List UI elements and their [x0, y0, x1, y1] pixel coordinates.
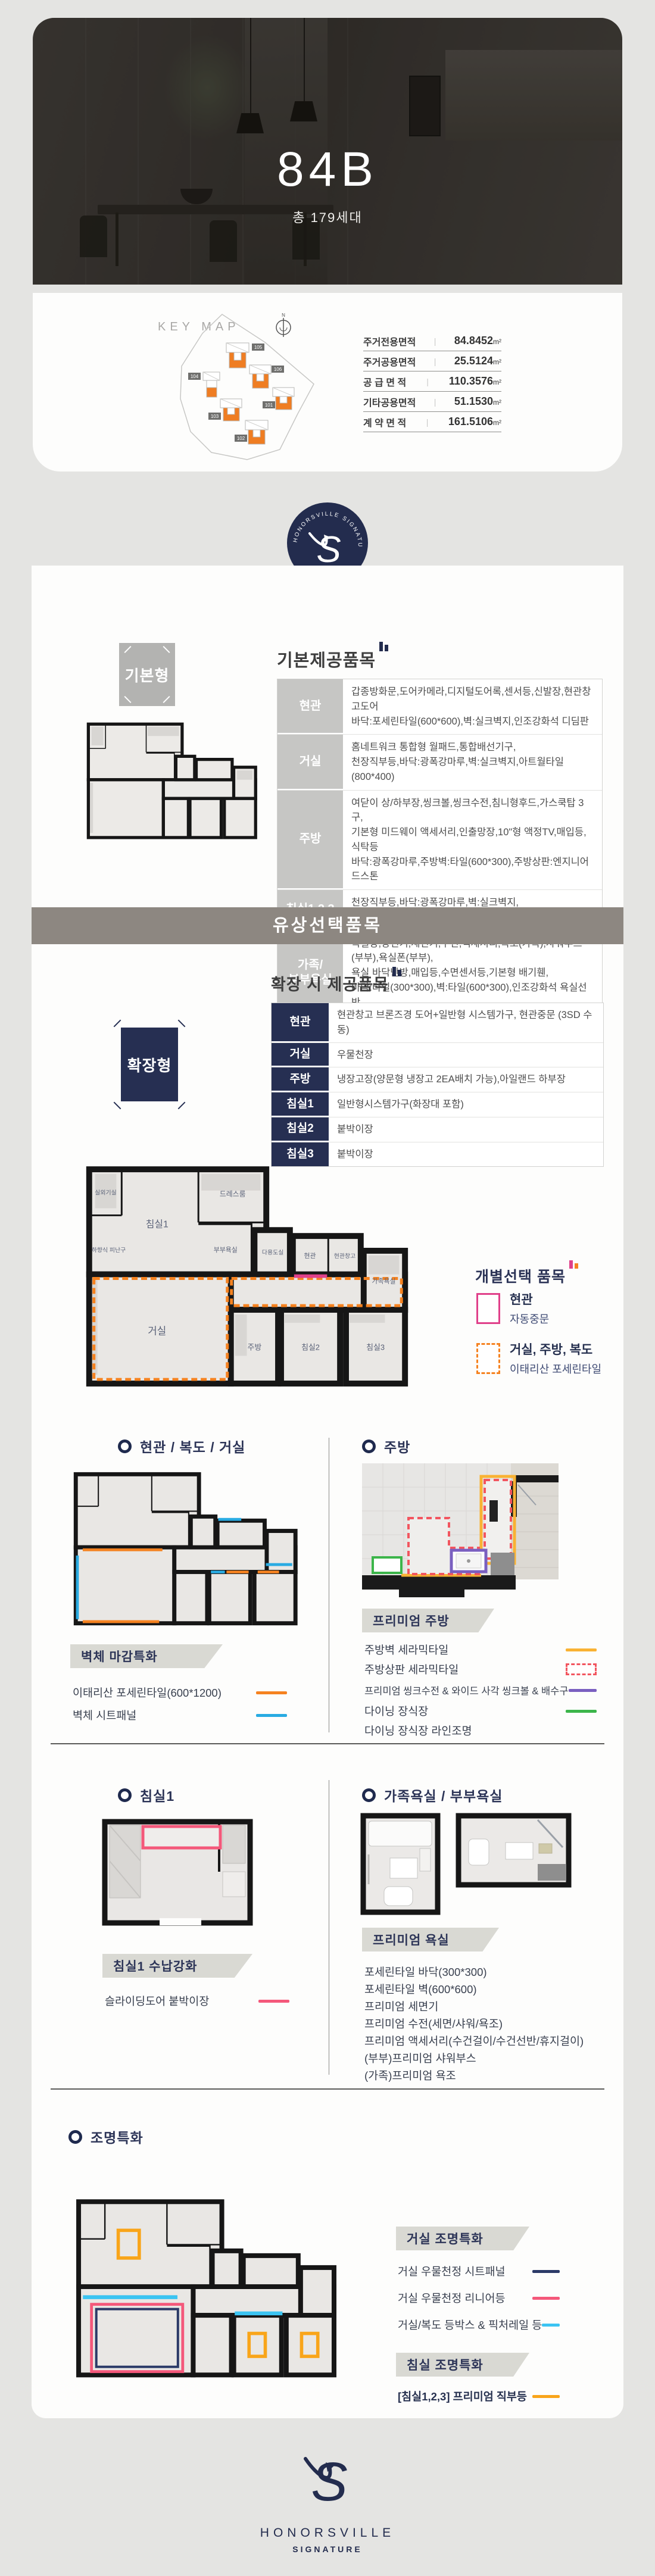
- wall-finish-floorplan: [65, 1469, 304, 1634]
- basic-items-table: 현관 갑종방화문,도어카메라,디지털도어록,센서등,신발장,현관창고도어 바닥:…: [277, 679, 603, 1016]
- keymap-card: [33, 293, 622, 472]
- svg-text:드레스룸: 드레스룸: [220, 1190, 246, 1198]
- legend-row: 프리미엄 씽크수전 & 와이드 사각 씽크볼 & 배수구: [364, 1683, 597, 1697]
- basic-floorplan: [80, 720, 262, 845]
- legend-row: 주방벽 세라믹타일: [364, 1642, 597, 1657]
- legend-row: 벽체 시트패널: [73, 1707, 287, 1723]
- pink-line-swatch: [532, 2297, 560, 2300]
- wall-finish-tag: 벽체 마감특화: [70, 1644, 223, 1668]
- dining-cabinet-highlight: [373, 1557, 401, 1573]
- ring-icon: [362, 1440, 376, 1453]
- list-item: (가족)프리미엄 욕조: [364, 2067, 584, 2084]
- footer-sub-brand: SIGNATURE: [0, 2544, 655, 2554]
- svg-text:102: 102: [237, 436, 245, 441]
- svg-text:현관창고: 현관창고: [334, 1253, 355, 1260]
- quote-marks-icon: [379, 642, 388, 651]
- svg-text:거실: 거실: [148, 1326, 166, 1337]
- living-lighting-tag: 거실 조명특화: [396, 2227, 529, 2250]
- svg-text:가족욕실: 가족욕실: [372, 1277, 395, 1285]
- footer-logo-icon: S: [295, 2446, 360, 2517]
- svg-text:부부욕실: 부부욕실: [214, 1246, 238, 1254]
- column-divider: [329, 1780, 329, 2075]
- site-keymap: 105 106 104 101 103 102: [176, 310, 322, 466]
- master-bath-floorplan: [456, 1813, 572, 1888]
- svg-text:실외기실: 실외기실: [95, 1189, 116, 1197]
- household-count: 총 179세대: [33, 207, 622, 226]
- table-row: 계 약 면 적| 161.5106m²: [363, 412, 501, 432]
- table-row: 침실2 붙박이장: [272, 1117, 603, 1142]
- svg-text:105: 105: [254, 345, 263, 350]
- legend-row: [침실1,2,3] 프리미엄 직부등: [398, 2388, 560, 2404]
- table-row: 현관 현관창고 브론즈경 도어+일반형 시스템가구, 현관중문 (3SD 수동): [272, 1003, 603, 1043]
- svg-text:침실1: 침실1: [146, 1219, 169, 1229]
- table-row: 주거전용면적| 84.8452m²: [363, 331, 501, 351]
- section-heading-bathrooms: 가족욕실 / 부부욕실: [362, 1785, 503, 1805]
- list-item: 프리미엄 액세서리(수건걸이/수건선반/휴지걸이): [364, 2032, 584, 2050]
- amber-line-swatch: [566, 1648, 597, 1651]
- column-divider: [329, 1438, 329, 1732]
- pink-box-swatch: [476, 1293, 500, 1324]
- basic-items-title: 기본제공품목: [277, 647, 388, 672]
- table-row: 거실 우물천장: [272, 1043, 603, 1068]
- kitchen-floorplan: [362, 1463, 559, 1597]
- individual-select-title: 개별선택 품목: [475, 1265, 578, 1287]
- building-104: 104: [188, 372, 220, 397]
- building-102: 102: [235, 420, 268, 444]
- list-item: 포세린타일 벽(600*600): [364, 1981, 584, 1998]
- svg-text:주방: 주방: [248, 1342, 262, 1351]
- svg-text:106: 106: [274, 367, 282, 372]
- svg-text:침실2: 침실2: [301, 1342, 320, 1351]
- building-101: 101: [263, 388, 294, 410]
- quote-marks-icon: [569, 1260, 578, 1287]
- section-heading-bed1: 침실1: [118, 1785, 174, 1805]
- premium-bath-list: 포세린타일 바닥(300*300) 포세린타일 벽(600*600) 프리미엄 …: [364, 1963, 584, 2084]
- footer-brand: HONORSVILLE: [0, 2526, 655, 2540]
- red-dashed-swatch: [566, 1663, 597, 1675]
- area-table: 주거전용면적| 84.8452m² 주거공용면적| 25.5124m² 공 급 …: [363, 331, 501, 432]
- list-item: 포세린타일 바닥(300*300): [364, 1963, 584, 1981]
- expand-items-table: 현관 현관창고 브론즈경 도어+일반형 시스템가구, 현관중문 (3SD 수동)…: [271, 1003, 604, 1167]
- svg-text:S: S: [311, 2452, 347, 2512]
- table-row: 거실 홈네트워크 통합형 월패드,통합배선기구, 천장직부등,바닥:광폭강마루,…: [277, 735, 602, 790]
- legend-row: 다이닝 장식장 라인조명: [364, 1723, 597, 1738]
- svg-text:하향식 피난구: 하향식 피난구: [92, 1246, 126, 1254]
- ring-icon: [118, 1788, 132, 1802]
- table-row: 주방 냉장고장(양문형 냉장고 2EA배치 가능),아일랜드 하부장: [272, 1067, 603, 1092]
- table-row: 공 급 면 적| 110.3576m²: [363, 371, 501, 392]
- bedroom-lighting-tag: 침실 조명특화: [396, 2353, 529, 2377]
- individual-item-entrance: 현관 자동중문: [476, 1293, 549, 1326]
- legend-row: 거실/복도 등박스 & 픽처레일 등: [398, 2317, 560, 2333]
- section-divider: [51, 1743, 604, 1744]
- cyan-line-swatch: [542, 2324, 560, 2327]
- family-bath-floorplan: [360, 1813, 441, 1915]
- quote-marks-icon: [392, 967, 401, 976]
- individual-item-living: 거실, 주방, 복도 이태리산 포세린타일: [476, 1343, 601, 1376]
- table-row: 현관 갑종방화문,도어카메라,디지털도어록,센서등,신발장,현관창고도어 바닥:…: [277, 679, 602, 735]
- section-heading-lighting: 조명특화: [68, 2127, 144, 2147]
- legend-row: 거실 우물천정 시트패널: [398, 2263, 560, 2279]
- orange-line-swatch: [532, 2395, 560, 2398]
- navy-line-swatch: [532, 2270, 560, 2273]
- unit-type-title: 84B: [33, 142, 622, 198]
- blue-line-swatch: [256, 1714, 287, 1717]
- legend-row: 주방상판 세라믹타일: [364, 1662, 597, 1677]
- svg-text:다용도실: 다용도실: [262, 1249, 283, 1256]
- legend-row: 거실 우물천정 리니어등: [398, 2290, 560, 2306]
- building-106: 106: [249, 365, 284, 388]
- bed1-floorplan: [100, 1817, 255, 1927]
- svg-text:S: S: [316, 529, 341, 570]
- legend-row: 이태리산 포세린타일(600*1200): [73, 1685, 287, 1700]
- brochure-page: 84B 총 179세대 KEY MAP N 105 106 104: [0, 0, 655, 2576]
- orange-dashed-swatch: [476, 1343, 500, 1374]
- table-row: 주방 여닫이 상/하부장,씽크볼,씽크수전,침니형후드,가스쿡탑 3구, 기본형…: [277, 791, 602, 891]
- building-105: 105: [226, 343, 264, 368]
- lighting-floorplan: [67, 2196, 344, 2387]
- list-item: 프리미엄 세면기: [364, 1998, 584, 2015]
- section-divider: [51, 2088, 604, 2090]
- table-row: 기타공용면적| 51.1530m²: [363, 392, 501, 412]
- premium-kitchen-tag: 프리미엄 주방: [362, 1609, 494, 1632]
- expand-items-title: 확장 시 제공품목: [271, 972, 401, 995]
- list-item: (부부)프리미엄 샤워부스: [364, 2050, 584, 2067]
- expanded-type-badge: 확장형: [121, 1028, 178, 1101]
- legend-row: 다이닝 장식장: [364, 1703, 597, 1719]
- list-item: 프리미엄 수전(세면/샤워/욕조): [364, 2015, 584, 2032]
- svg-text:101: 101: [265, 402, 273, 408]
- legend-row: 슬라이딩도어 붙박이장: [105, 1993, 289, 2009]
- svg-text:104: 104: [191, 374, 199, 379]
- pink-line-swatch: [258, 2000, 289, 2003]
- orange-line-swatch: [256, 1691, 287, 1694]
- purple-line-swatch: [569, 1689, 597, 1692]
- premium-bath-tag: 프리미엄 욕실: [362, 1928, 499, 1951]
- ring-icon: [118, 1440, 132, 1453]
- table-row: 침실1 일반형시스템가구(화장대 포함): [272, 1092, 603, 1117]
- svg-text:103: 103: [211, 414, 219, 419]
- paid-options-banner: 유상선택품목: [32, 907, 623, 944]
- svg-text:현관: 현관: [304, 1252, 316, 1260]
- building-103: 103: [208, 399, 242, 421]
- closet-highlight: [143, 1826, 220, 1848]
- section-heading-kitchen: 주방: [362, 1436, 410, 1456]
- hero-image: 84B 총 179세대: [33, 18, 622, 285]
- expanded-floorplan: 실외기실 침실1 드레스룸 하향식 피난구 부부욕실 다용도실 현관 현관창고 …: [74, 1162, 417, 1398]
- svg-text:침실3: 침실3: [366, 1342, 385, 1351]
- ring-icon: [68, 2130, 82, 2144]
- ring-icon: [362, 1788, 376, 1802]
- green-line-swatch: [566, 1710, 597, 1713]
- bed1-storage-tag: 침실1 수납강화: [102, 1954, 252, 1978]
- basic-type-badge: 기본형: [119, 643, 175, 706]
- table-row: 주거공용면적| 25.5124m²: [363, 351, 501, 371]
- section-heading-entrance-hall-living: 현관 / 복도 / 거실: [118, 1436, 245, 1456]
